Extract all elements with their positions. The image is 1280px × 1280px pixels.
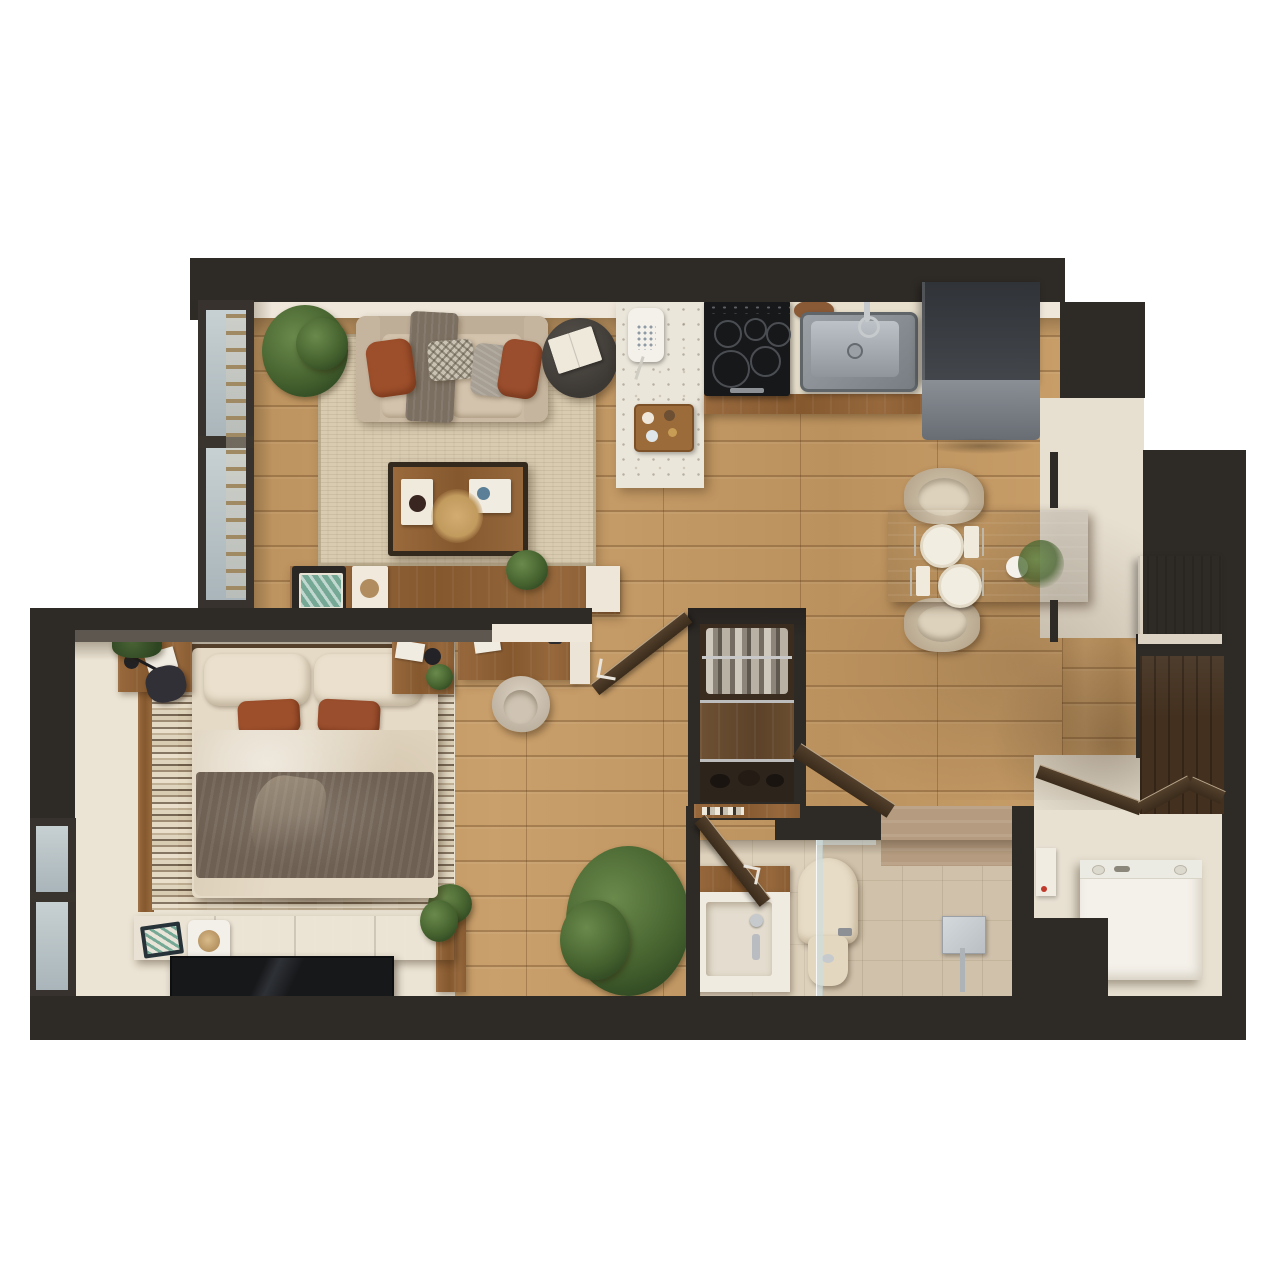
coffee-table-vase (409, 495, 426, 512)
bedroom-window-glass-2 (36, 902, 68, 990)
burner-3 (766, 322, 791, 347)
wall-bath-right (1012, 806, 1034, 998)
island-serving-tray (634, 404, 694, 452)
wall-alcove-jamb-top (1050, 452, 1058, 508)
tray-jar (664, 410, 675, 421)
closet-shoe-1 (710, 774, 730, 788)
closet-books (702, 807, 744, 815)
phone-keypad (636, 324, 656, 350)
cutlery-1 (982, 528, 984, 556)
shower-drain (838, 928, 852, 936)
nightstand-lamp (424, 648, 441, 665)
bedroom-tv (170, 956, 394, 998)
console-shelf-end (586, 566, 620, 612)
closet-bottom-shelf (694, 804, 800, 818)
toilet (798, 858, 860, 988)
entry-door-handle (596, 658, 618, 680)
counter-cabinet-edge (704, 394, 924, 414)
living-window-frame (198, 300, 254, 612)
utility-fixture-dot (1041, 886, 1047, 892)
dining-chair-bottom-seat (917, 606, 967, 642)
closet-hanging-clothes (706, 628, 788, 694)
wall-utility-step (1030, 918, 1108, 1000)
washer-knob-2 (1114, 866, 1130, 872)
dresser-plant (420, 900, 458, 942)
shower-wall-tile (881, 806, 1012, 866)
napkin-1 (964, 526, 979, 558)
wall-bath-left (686, 806, 700, 998)
sink-drain (847, 343, 863, 359)
wall-bottom (30, 996, 1246, 1040)
cooktop-handle (730, 388, 764, 393)
refrigerator-door (922, 380, 1040, 440)
plate-2 (938, 564, 982, 608)
nightstand-plant (426, 664, 453, 690)
console-plant (506, 550, 548, 590)
bathroom-door-handle (740, 864, 760, 884)
closet-shoe-3 (766, 774, 784, 787)
desk-alcove-face (488, 624, 592, 642)
dresser-art (144, 926, 179, 954)
tray-lemon (668, 428, 677, 437)
wall-desk-alcove-band (488, 608, 592, 624)
shower-glass-return (816, 840, 876, 845)
closet-shoe-section (700, 762, 794, 802)
console-tray-table (292, 566, 346, 614)
refrigerator (922, 282, 1040, 382)
console-art-tray (299, 573, 343, 609)
burner-2 (744, 318, 767, 341)
living-window-blinds (226, 314, 246, 598)
wall-bedroom-top-face (30, 630, 492, 642)
console-tray (352, 566, 388, 612)
pillow-patterned (427, 338, 476, 381)
living-corner-plant-top (296, 318, 348, 370)
bathroom-vanity-basin (694, 892, 790, 992)
refrigerator-highlight (922, 282, 925, 382)
tray-cup-2 (646, 430, 658, 442)
coffee-table-tray-dish (477, 487, 490, 500)
wall-right-upper-block (1060, 302, 1145, 398)
desk-chair-seat (501, 688, 539, 726)
washer-knob-3 (1174, 865, 1187, 875)
cutlery-3 (910, 568, 912, 596)
built-in-cabinet (1138, 556, 1222, 636)
burner-1 (714, 320, 742, 348)
dresser-art-tray (140, 921, 184, 958)
floorplan-canvas (0, 0, 1280, 1280)
floor-right-band (1062, 634, 1140, 758)
pillow-rust-left (364, 337, 417, 399)
built-in-cabinet-ledge (1138, 634, 1222, 644)
basin-recess (706, 902, 772, 976)
toilet-flush-button (822, 954, 834, 963)
cooktop (704, 300, 790, 396)
washer-knob-1 (1092, 865, 1105, 875)
sink-faucet-spout (858, 316, 880, 338)
cutlery-2 (914, 526, 916, 556)
burner-5 (750, 346, 781, 377)
plate-1 (920, 524, 964, 568)
closet-rod (702, 656, 792, 659)
basin-faucet (750, 914, 763, 927)
dried-pampas (431, 489, 483, 543)
dresser-speaker-cone (198, 930, 220, 952)
hall-floor-plant-lobe (560, 900, 630, 980)
tray-cup-1 (642, 412, 654, 424)
burner-4 (712, 350, 750, 388)
table-plant (1018, 540, 1064, 588)
closet-shelf-section (700, 703, 794, 759)
bedroom-window-mullion (30, 892, 76, 902)
console-tray-bowl (360, 579, 379, 598)
bed-pillow-left (204, 654, 310, 706)
shower-glass-panel (816, 840, 823, 998)
utility-wall-fixture (1036, 848, 1056, 896)
bedroom-window-glass-1 (36, 826, 68, 892)
wall-phone (628, 308, 664, 362)
cooktop-control-band (704, 300, 790, 314)
bedroom-window-frame (30, 818, 76, 998)
wall-bedroom-top (30, 608, 492, 642)
napkin-2 (916, 566, 930, 596)
shower-fixture-pipe (960, 948, 965, 992)
wall-left-upper (30, 608, 75, 822)
cutlery-4 (982, 568, 984, 596)
coffee-table (388, 462, 528, 556)
wall-utility-right (1222, 662, 1246, 996)
closet-shoe-2 (738, 770, 760, 786)
basin-faucet-lever (752, 934, 760, 960)
wall-alcove-jamb-bottom (1050, 600, 1058, 642)
closet-clothes-section (700, 624, 794, 700)
closet-unit (688, 608, 806, 820)
